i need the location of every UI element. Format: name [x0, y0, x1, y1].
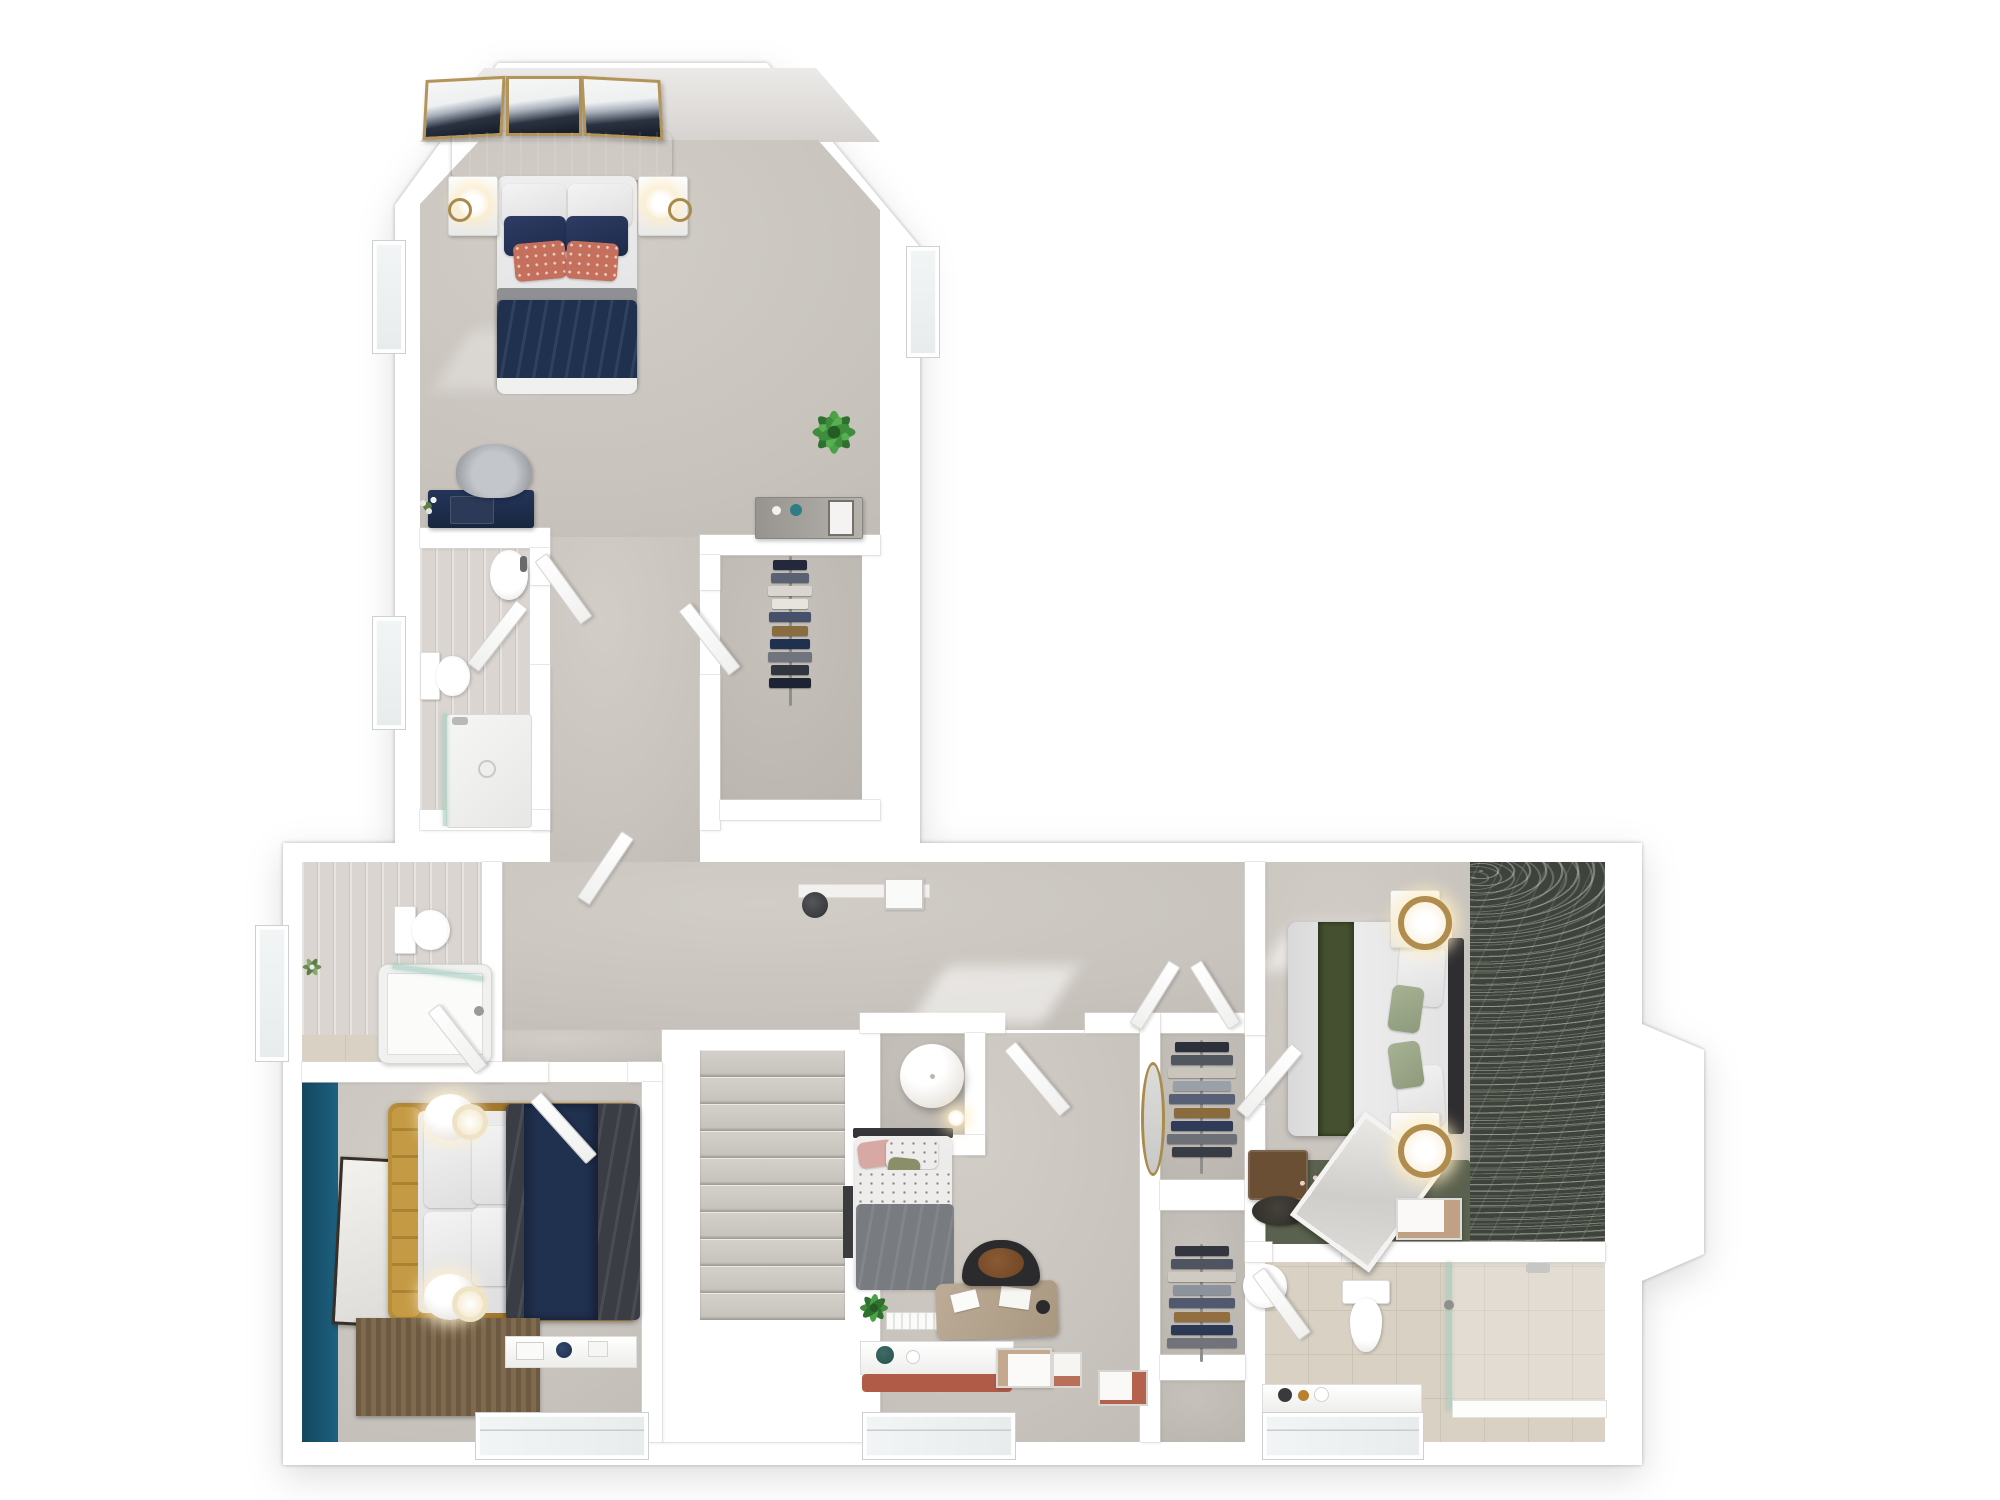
shower-head: [1526, 1263, 1550, 1273]
sage-cushion: [1387, 984, 1425, 1034]
window: [372, 616, 406, 730]
wall: [628, 1062, 662, 1082]
wall: [302, 1062, 548, 1082]
shower-zone-floor: [1452, 1262, 1605, 1412]
clothes-item: [768, 652, 812, 662]
clothes-item: [772, 626, 807, 636]
dresser-decor: [790, 504, 802, 516]
wall: [420, 528, 550, 548]
clothes-item: [1174, 1312, 1229, 1322]
shelf-box: [588, 1341, 608, 1357]
clothes-item: [773, 560, 808, 570]
pendant-cord: [930, 1074, 935, 1079]
stair-tread: [700, 1050, 845, 1077]
window: [255, 925, 289, 1062]
bath-tap: [474, 1006, 484, 1016]
hanging-clothes: [766, 558, 814, 706]
wall: [530, 665, 550, 830]
clothes-item: [769, 678, 811, 688]
shelf-bottle: [1278, 1388, 1292, 1402]
floorplan-canvas: [0, 0, 2000, 1500]
window: [475, 1412, 649, 1460]
stair-tread: [700, 1266, 845, 1293]
headboard-pad: [392, 1107, 420, 1317]
lamp-brass-arm: [448, 198, 472, 222]
leaning-print: [1098, 1370, 1148, 1406]
wall-art-frame: [506, 76, 582, 136]
radiator: [802, 892, 828, 918]
wall: [700, 675, 720, 830]
shelf-plant-pot: [876, 1346, 894, 1364]
sheet-edge: [497, 378, 637, 394]
clothes-item: [1168, 1068, 1236, 1078]
lamp-brass-arm: [668, 198, 692, 222]
teal-accent-wall: [302, 1082, 338, 1442]
desk-chair: [456, 444, 532, 498]
clothes-item: [1172, 1147, 1231, 1157]
stair-tread: [700, 1212, 845, 1239]
shower-kerb: [1452, 1400, 1607, 1418]
clothes-item: [1175, 1042, 1230, 1052]
right-bay-outline: [1642, 1018, 1706, 1281]
navy-duvet: [497, 300, 637, 390]
wall: [700, 555, 720, 590]
wall: [642, 1082, 662, 1442]
laptop: [450, 496, 494, 524]
chair-seat: [978, 1248, 1024, 1278]
basin-tap: [520, 556, 527, 572]
clothes-item: [771, 573, 810, 583]
green-runner: [1318, 922, 1354, 1136]
clothes-item: [1173, 1081, 1232, 1091]
toilet-bowl: [412, 910, 450, 950]
clothes-item: [1175, 1246, 1230, 1256]
dresser-decor: [772, 506, 781, 515]
clothes-item: [770, 639, 809, 649]
clothes-item: [1171, 1055, 1233, 1065]
pendant-lamp-ring: [452, 1286, 488, 1322]
pendant-lamp-ring: [452, 1104, 488, 1140]
window: [372, 240, 406, 354]
staircase: [700, 1050, 845, 1320]
desk-flowers: [414, 492, 444, 524]
clothes-item: [1169, 1094, 1234, 1104]
shower-glass: [443, 714, 447, 826]
shower-glass: [1447, 1262, 1451, 1410]
master-vestibule-floor: [550, 537, 700, 865]
clothes-item: [1167, 1134, 1236, 1144]
clothes-item: [1168, 1272, 1236, 1282]
shower-handle: [1444, 1300, 1454, 1310]
stair-tread: [700, 1077, 845, 1104]
clothes-item: [768, 586, 811, 596]
stair-tread: [700, 1104, 845, 1131]
windowsill-plant-icon: [292, 944, 332, 990]
shower-drain: [478, 760, 496, 778]
clothes-item: [1169, 1298, 1234, 1308]
desk-paper: [999, 1286, 1031, 1310]
floor-print: [1396, 1198, 1462, 1240]
window-seat-cushion: [862, 1374, 1012, 1392]
hanging-clothes: [1164, 1040, 1240, 1174]
stair-tread: [700, 1239, 845, 1266]
ring-lamp: [1398, 1124, 1452, 1178]
shower-head: [452, 717, 468, 725]
wardrobe-bottom-floor: [1160, 1380, 1245, 1442]
hanging-clothes: [1164, 1244, 1240, 1362]
window: [862, 1412, 1016, 1460]
stair-tread: [700, 1293, 845, 1320]
clothes-item: [1171, 1325, 1233, 1335]
shelf-candle: [1314, 1387, 1329, 1402]
cushion: [512, 240, 567, 282]
clothes-item: [769, 612, 810, 622]
window: [906, 246, 940, 358]
clothes-item: [1173, 1285, 1232, 1295]
wall: [720, 800, 880, 820]
leaning-frames: [843, 1186, 853, 1258]
shelf-tray: [516, 1342, 544, 1360]
shelf-mug: [906, 1350, 920, 1364]
clothes-item: [1167, 1338, 1236, 1348]
wall-art-frame: [580, 76, 663, 140]
wall-art-frame: [422, 76, 505, 140]
clothes-item: [772, 599, 809, 609]
stair-tread: [700, 1185, 845, 1212]
master-headboard: [452, 132, 672, 180]
desk-lamp: [1036, 1300, 1050, 1314]
clothes-item: [1171, 1259, 1233, 1269]
wall: [1245, 1242, 1272, 1262]
dark-headboard: [1448, 938, 1464, 1134]
botanical-wallpaper-wall: [1470, 862, 1605, 1242]
stair-tread: [700, 1131, 845, 1158]
toilet-bowl: [436, 656, 470, 696]
cushion: [565, 240, 620, 282]
stair-tread: [700, 1158, 845, 1185]
wall-sconce: [948, 1110, 964, 1126]
dresser-frame: [828, 500, 854, 536]
leaning-print: [1052, 1352, 1082, 1388]
shelf-vase: [556, 1342, 572, 1358]
wardrobe-divider: [1160, 1180, 1245, 1210]
oval-mirror: [1141, 1062, 1165, 1176]
leaning-print: [996, 1348, 1052, 1388]
shelf-bottle: [1298, 1390, 1309, 1401]
hall-art: [884, 878, 924, 910]
landing-pocket-floor: [502, 1030, 662, 1062]
sage-cushion: [1387, 1040, 1425, 1090]
houseplant-icon: [796, 390, 872, 472]
clothes-item: [1174, 1108, 1229, 1118]
clothes-item: [771, 665, 808, 675]
ring-lamp: [1398, 896, 1452, 950]
window: [1262, 1412, 1424, 1460]
clothes-item: [1171, 1121, 1233, 1131]
wall: [1245, 862, 1265, 1035]
